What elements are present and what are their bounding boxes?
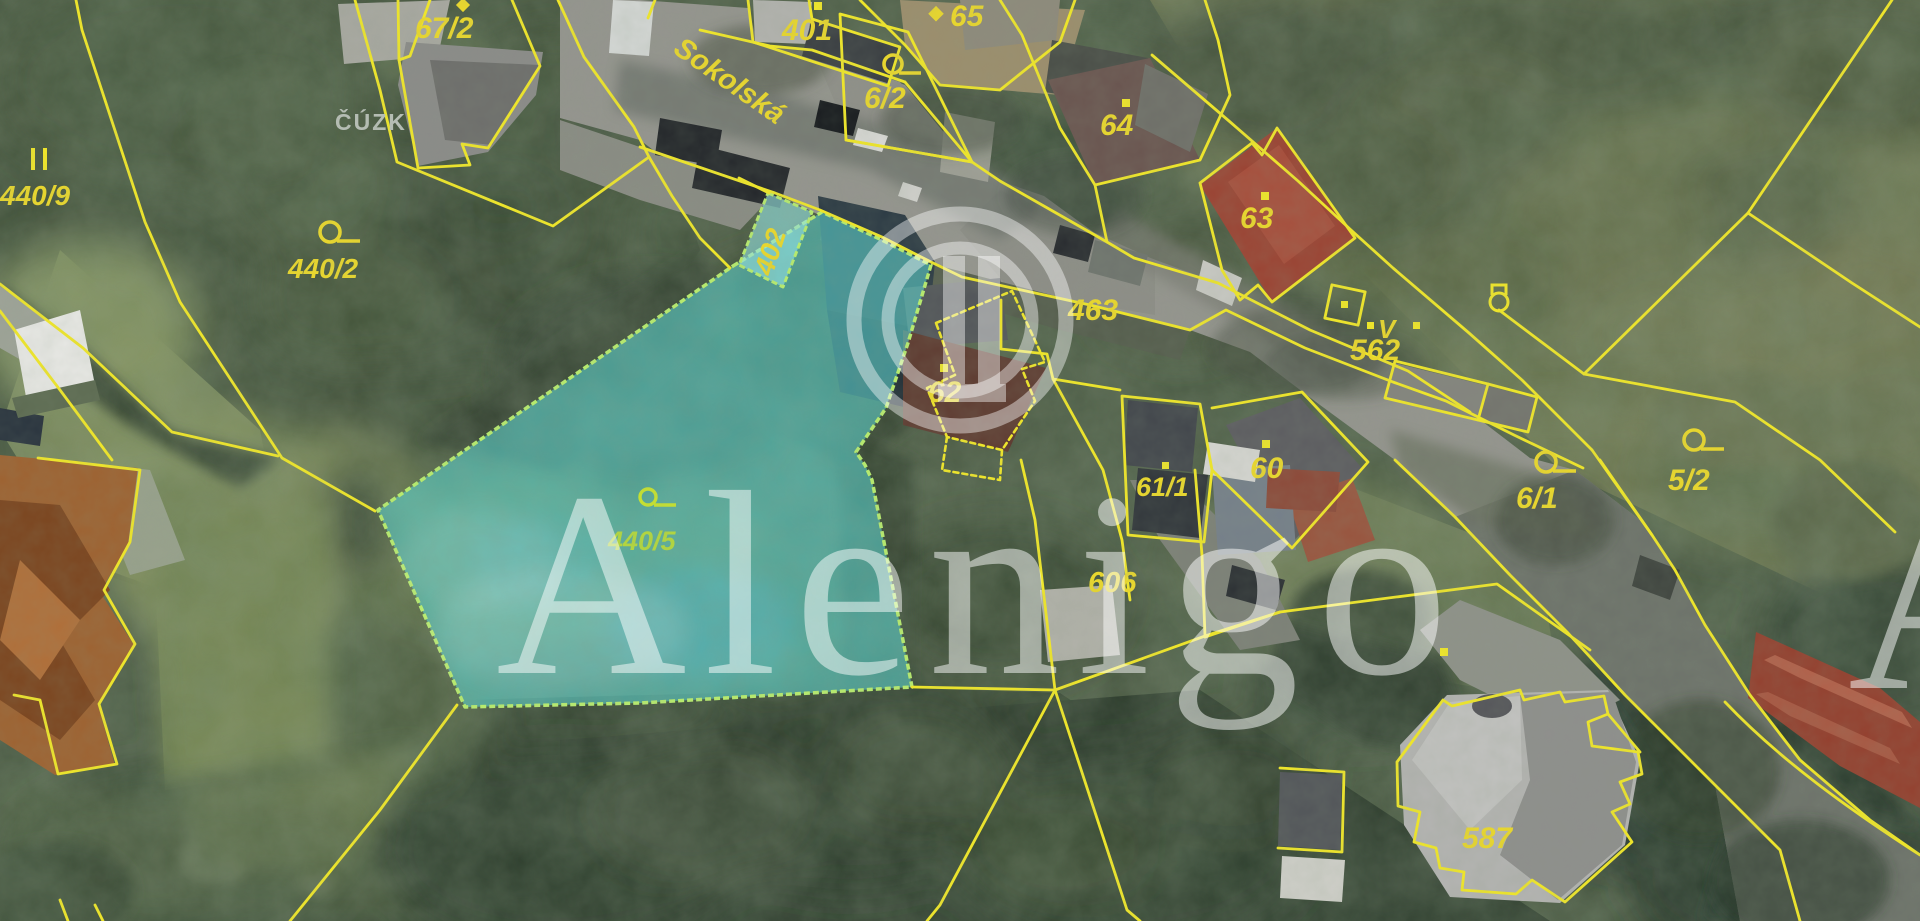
svg-text:A: A: [1848, 455, 1920, 745]
svg-text:Alenigo: Alenigo: [496, 439, 1466, 731]
